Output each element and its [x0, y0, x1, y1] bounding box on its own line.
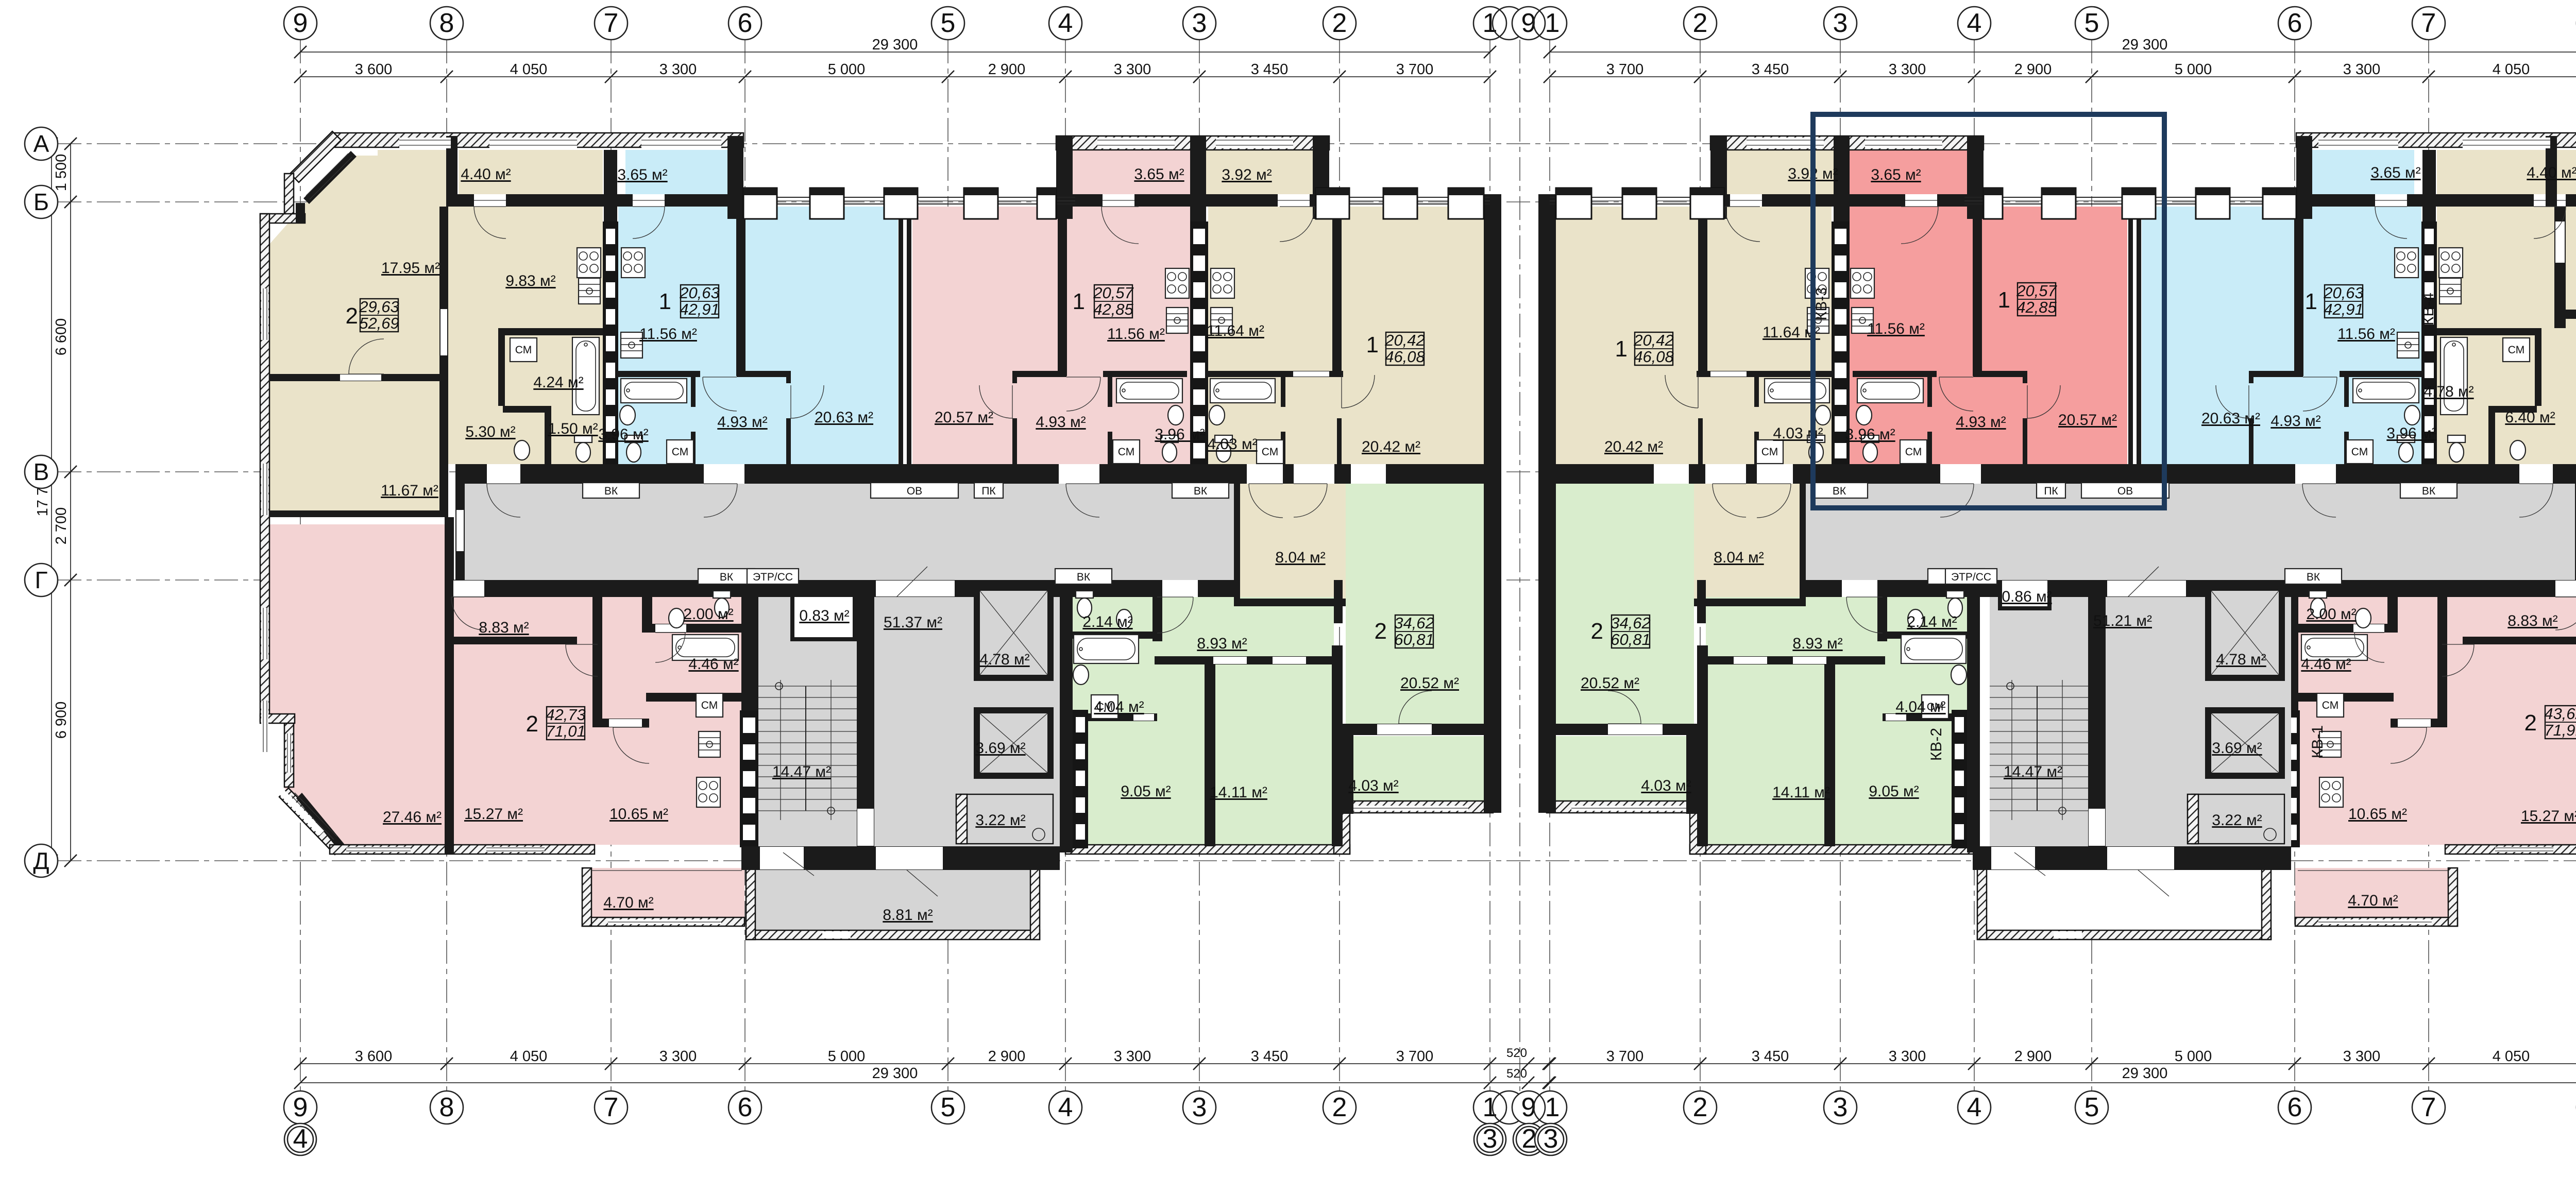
svg-text:2 900: 2 900	[2014, 61, 2052, 78]
svg-text:9: 9	[293, 8, 308, 38]
svg-text:КВ-1: КВ-1	[2309, 725, 2326, 758]
svg-text:2: 2	[1693, 8, 1708, 38]
svg-text:3.65 м²: 3.65 м²	[617, 166, 667, 183]
svg-text:42,91: 42,91	[2324, 300, 2364, 318]
svg-text:2: 2	[346, 303, 358, 329]
svg-text:20,63: 20,63	[679, 284, 720, 302]
svg-text:6 600: 6 600	[53, 318, 70, 356]
svg-text:2: 2	[1332, 1093, 1347, 1122]
svg-text:СМ: СМ	[2322, 700, 2338, 711]
svg-text:3 300: 3 300	[659, 61, 697, 78]
svg-text:4.03 м²: 4.03 м²	[1348, 777, 1398, 794]
svg-text:7: 7	[604, 8, 619, 38]
svg-text:3.65 м²: 3.65 м²	[2370, 164, 2420, 181]
svg-text:2: 2	[2524, 710, 2537, 736]
svg-text:20.57 м²: 20.57 м²	[935, 409, 993, 426]
svg-text:29 300: 29 300	[872, 1065, 918, 1082]
svg-text:6 900: 6 900	[53, 702, 70, 739]
svg-text:20.52 м²: 20.52 м²	[1581, 675, 1639, 692]
svg-text:5: 5	[941, 1093, 956, 1122]
svg-text:3 300: 3 300	[2343, 1048, 2381, 1065]
svg-text:ВК: ВК	[2422, 485, 2436, 497]
svg-text:46,08: 46,08	[1634, 348, 1674, 366]
svg-text:СМ: СМ	[1761, 446, 1778, 458]
svg-text:5: 5	[2084, 1093, 2099, 1122]
svg-text:СМ: СМ	[672, 446, 688, 458]
svg-text:4.78 м²: 4.78 м²	[2216, 651, 2266, 668]
svg-text:20.42 м²: 20.42 м²	[1604, 438, 1663, 455]
svg-text:8.83 м²: 8.83 м²	[2507, 612, 2557, 629]
svg-text:60,81: 60,81	[1394, 630, 1434, 649]
svg-text:8.93 м²: 8.93 м²	[1197, 635, 1247, 652]
svg-text:ПК: ПК	[981, 485, 996, 497]
svg-text:10.65 м²: 10.65 м²	[2348, 806, 2407, 823]
svg-text:3: 3	[1833, 8, 1848, 38]
svg-text:6.40 м²: 6.40 м²	[2505, 409, 2555, 426]
svg-text:4.93 м²: 4.93 м²	[1036, 414, 1086, 431]
svg-text:6: 6	[738, 1093, 753, 1122]
svg-text:1: 1	[1073, 289, 1085, 314]
svg-text:4.24 м²: 4.24 м²	[533, 374, 583, 391]
svg-text:Д: Д	[33, 847, 49, 874]
svg-text:8.81 м²: 8.81 м²	[883, 907, 933, 924]
svg-text:34,62: 34,62	[1394, 614, 1434, 632]
svg-text:8.04 м²: 8.04 м²	[1714, 549, 1764, 566]
svg-text:29 300: 29 300	[2122, 37, 2168, 53]
svg-text:20.52 м²: 20.52 м²	[1400, 675, 1459, 692]
svg-text:520: 520	[1506, 1046, 1527, 1060]
svg-text:20.63 м²: 20.63 м²	[815, 409, 873, 426]
svg-text:3.65 м²: 3.65 м²	[1134, 166, 1184, 183]
svg-text:0.83 м²: 0.83 м²	[799, 607, 849, 624]
svg-text:42,91: 42,91	[680, 300, 720, 318]
svg-text:15.27 м²: 15.27 м²	[464, 806, 523, 823]
svg-text:4 050: 4 050	[2493, 61, 2530, 78]
svg-text:29,63: 29,63	[359, 298, 399, 316]
svg-text:2: 2	[1375, 619, 1387, 644]
svg-text:3 700: 3 700	[1396, 61, 1434, 78]
svg-text:4: 4	[1058, 1093, 1073, 1122]
svg-text:3 450: 3 450	[1251, 61, 1289, 78]
svg-text:5.30 м²: 5.30 м²	[465, 423, 515, 440]
svg-text:ВК: ВК	[1833, 485, 1846, 497]
svg-text:20,42: 20,42	[1384, 331, 1425, 349]
svg-text:3 300: 3 300	[1114, 61, 1151, 78]
svg-text:КВ-4: КВ-4	[2420, 293, 2437, 326]
svg-text:6: 6	[738, 8, 753, 38]
svg-text:1: 1	[1615, 336, 1628, 362]
svg-text:14.11 м²: 14.11 м²	[1210, 784, 1267, 801]
svg-text:3 300: 3 300	[2343, 61, 2381, 78]
svg-text:1: 1	[1483, 1093, 1498, 1122]
svg-text:4 050: 4 050	[510, 61, 548, 78]
svg-text:5: 5	[2084, 8, 2099, 38]
svg-text:4.46 м²: 4.46 м²	[2301, 656, 2351, 673]
svg-text:3: 3	[1483, 1124, 1498, 1154]
svg-text:В: В	[33, 458, 49, 485]
svg-text:А: А	[33, 130, 49, 157]
svg-text:ВК: ВК	[604, 485, 618, 497]
svg-text:20,42: 20,42	[1633, 331, 1674, 349]
svg-text:52,69: 52,69	[359, 314, 399, 332]
svg-text:20,63: 20,63	[2323, 284, 2364, 302]
svg-text:Б: Б	[33, 189, 49, 215]
svg-text:20,57: 20,57	[1093, 284, 1134, 302]
svg-text:Г: Г	[35, 567, 48, 593]
svg-text:3.69 м²: 3.69 м²	[2212, 740, 2262, 757]
svg-text:11.67 м²: 11.67 м²	[381, 482, 438, 499]
svg-text:2: 2	[1693, 1093, 1708, 1122]
svg-text:27.46 м²: 27.46 м²	[383, 809, 442, 826]
svg-text:3 300: 3 300	[659, 1048, 697, 1065]
svg-text:2 700: 2 700	[53, 507, 70, 545]
svg-text:1: 1	[2305, 289, 2317, 314]
svg-text:ПК: ПК	[2044, 485, 2058, 497]
svg-text:ОВ: ОВ	[2117, 485, 2133, 497]
svg-text:8: 8	[439, 1093, 454, 1122]
svg-text:СМ: СМ	[515, 344, 532, 356]
svg-text:42,85: 42,85	[2016, 298, 2057, 316]
svg-text:9.83 м²: 9.83 м²	[505, 272, 555, 289]
svg-text:ЭТР/СС: ЭТР/СС	[753, 571, 793, 583]
svg-text:4: 4	[293, 1124, 308, 1154]
svg-text:1: 1	[1483, 8, 1498, 38]
svg-text:2: 2	[1591, 619, 1603, 644]
svg-text:3: 3	[1192, 1093, 1207, 1122]
svg-text:2.14 м²: 2.14 м²	[1907, 613, 1957, 630]
svg-text:СМ: СМ	[701, 700, 718, 711]
svg-text:9: 9	[293, 1093, 308, 1122]
svg-text:11.56 м²: 11.56 м²	[1867, 320, 1925, 337]
svg-text:СМ: СМ	[1118, 446, 1134, 458]
svg-text:3.65 м²: 3.65 м²	[1871, 166, 1921, 183]
svg-text:43,62: 43,62	[2544, 705, 2576, 723]
svg-text:СМ: СМ	[2508, 344, 2524, 356]
svg-text:15.27 м²: 15.27 м²	[2521, 808, 2576, 825]
svg-text:0.86 м²: 0.86 м²	[2002, 588, 2052, 605]
svg-text:3.96 м²: 3.96 м²	[2386, 425, 2436, 442]
svg-text:20.63 м²: 20.63 м²	[2201, 410, 2260, 427]
svg-text:6: 6	[2287, 1093, 2302, 1122]
svg-text:2: 2	[1332, 8, 1347, 38]
svg-text:10.65 м²: 10.65 м²	[609, 806, 668, 823]
svg-text:1: 1	[1545, 1093, 1560, 1122]
svg-text:60,81: 60,81	[1611, 630, 1651, 649]
svg-text:4.03 м²: 4.03 м²	[1773, 425, 1823, 442]
svg-text:4.70 м²: 4.70 м²	[603, 894, 653, 911]
svg-text:17.95 м²: 17.95 м²	[381, 260, 440, 277]
svg-text:4.70 м²: 4.70 м²	[2348, 892, 2398, 909]
svg-text:4.93 м²: 4.93 м²	[2270, 413, 2320, 430]
svg-text:14.47 м²: 14.47 м²	[2004, 763, 2062, 780]
svg-text:5: 5	[941, 8, 956, 38]
svg-text:4: 4	[1967, 1093, 1982, 1122]
svg-text:4.93 м²: 4.93 м²	[717, 414, 767, 431]
svg-text:3 700: 3 700	[1606, 1048, 1644, 1065]
svg-text:520: 520	[1506, 1067, 1527, 1081]
svg-text:8.04 м²: 8.04 м²	[1275, 549, 1325, 566]
svg-text:3: 3	[1833, 1093, 1848, 1122]
svg-text:29 300: 29 300	[2122, 1065, 2168, 1082]
svg-text:ЭТР/СС: ЭТР/СС	[1951, 571, 1991, 583]
svg-text:9.05 м²: 9.05 м²	[1869, 783, 1919, 800]
svg-text:4: 4	[1058, 8, 1073, 38]
svg-text:4.03 м²: 4.03 м²	[1641, 777, 1691, 794]
svg-text:1 500: 1 500	[53, 154, 70, 192]
svg-text:3.96 м²: 3.96 м²	[1155, 426, 1205, 443]
svg-text:2.00 м²: 2.00 м²	[2306, 606, 2356, 623]
svg-text:7: 7	[604, 1093, 619, 1122]
svg-text:5 000: 5 000	[828, 61, 866, 78]
svg-text:20,57: 20,57	[2016, 282, 2057, 300]
svg-text:34,62: 34,62	[1611, 614, 1651, 632]
svg-text:3 700: 3 700	[1606, 61, 1644, 78]
svg-text:1: 1	[659, 289, 671, 314]
svg-text:71,01: 71,01	[546, 722, 586, 740]
svg-text:9.05 м²: 9.05 м²	[1121, 783, 1171, 800]
svg-text:4.40 м²: 4.40 м²	[2527, 164, 2576, 181]
svg-text:3 300: 3 300	[1889, 61, 1926, 78]
svg-text:1: 1	[1366, 332, 1379, 357]
svg-text:3.69 м²: 3.69 м²	[975, 740, 1025, 757]
svg-text:14.11 м²: 14.11 м²	[1772, 784, 1830, 801]
svg-text:3: 3	[1544, 1124, 1558, 1154]
svg-text:СМ: СМ	[2351, 446, 2368, 458]
svg-text:11.56 м²: 11.56 м²	[639, 326, 697, 343]
svg-text:3 450: 3 450	[1251, 1048, 1289, 1065]
svg-text:20.57 м²: 20.57 м²	[2058, 412, 2117, 429]
svg-text:3 300: 3 300	[1114, 1048, 1151, 1065]
svg-text:4.04 м²: 4.04 м²	[1895, 698, 1945, 715]
svg-text:51.21 м²: 51.21 м²	[2093, 612, 2152, 629]
svg-text:3 450: 3 450	[1752, 61, 1789, 78]
svg-text:42,73: 42,73	[546, 706, 586, 724]
svg-text:4: 4	[1967, 8, 1982, 38]
svg-text:7: 7	[2421, 8, 2436, 38]
svg-text:29 300: 29 300	[872, 37, 918, 53]
svg-text:5 000: 5 000	[2175, 61, 2212, 78]
svg-text:7: 7	[2421, 1093, 2436, 1122]
svg-text:3 700: 3 700	[1396, 1048, 1434, 1065]
svg-text:3 450: 3 450	[1752, 1048, 1789, 1065]
svg-text:14.47 м²: 14.47 м²	[772, 763, 831, 780]
svg-text:2 900: 2 900	[988, 61, 1026, 78]
svg-text:3.96 м²: 3.96 м²	[1845, 426, 1895, 443]
svg-text:3.96 м²: 3.96 м²	[598, 426, 648, 443]
svg-text:71,91: 71,91	[2544, 721, 2576, 739]
svg-text:2: 2	[526, 711, 538, 737]
svg-text:1: 1	[1545, 8, 1560, 38]
svg-text:4.04 м²: 4.04 м²	[1094, 698, 1144, 715]
svg-text:2.14 м²: 2.14 м²	[1082, 613, 1132, 630]
svg-text:4.93 м²: 4.93 м²	[1956, 414, 2006, 431]
svg-text:2 900: 2 900	[2014, 1048, 2052, 1065]
svg-text:4.78 м²: 4.78 м²	[979, 651, 1029, 668]
svg-text:3 300: 3 300	[1889, 1048, 1926, 1065]
svg-text:3.22 м²: 3.22 м²	[2212, 812, 2262, 829]
svg-text:4 050: 4 050	[2493, 1048, 2530, 1065]
svg-text:2 900: 2 900	[988, 1048, 1026, 1065]
svg-text:КВ-2: КВ-2	[1928, 728, 1945, 761]
svg-text:СМ: СМ	[1905, 446, 1922, 458]
svg-text:8.83 м²: 8.83 м²	[479, 619, 529, 636]
svg-text:3 600: 3 600	[355, 61, 393, 78]
svg-text:11.64 м²: 11.64 м²	[1207, 322, 1264, 339]
svg-text:8: 8	[439, 8, 454, 38]
svg-text:20.42 м²: 20.42 м²	[1362, 438, 1420, 455]
svg-text:1.50 м²: 1.50 м²	[548, 420, 598, 437]
svg-text:ВК: ВК	[2307, 571, 2320, 583]
svg-text:СМ: СМ	[1262, 446, 1278, 458]
svg-text:3.22 м²: 3.22 м²	[975, 812, 1025, 829]
svg-text:3 600: 3 600	[355, 1048, 393, 1065]
svg-text:1: 1	[1998, 287, 2010, 313]
svg-text:ВК: ВК	[720, 571, 734, 583]
svg-text:51.37 м²: 51.37 м²	[884, 614, 942, 631]
svg-text:ВК: ВК	[1077, 571, 1091, 583]
svg-text:46,08: 46,08	[1385, 348, 1425, 366]
svg-text:ОВ: ОВ	[907, 485, 922, 497]
svg-text:11.56 м²: 11.56 м²	[2337, 326, 2395, 343]
svg-text:ВК: ВК	[1194, 485, 1208, 497]
svg-text:5 000: 5 000	[828, 1048, 866, 1065]
svg-text:4.03 м²: 4.03 м²	[1207, 436, 1257, 453]
svg-text:8.93 м²: 8.93 м²	[1792, 635, 1842, 652]
svg-text:4.78 м²: 4.78 м²	[2424, 383, 2473, 400]
svg-text:3.92 м²: 3.92 м²	[1222, 166, 1272, 183]
svg-text:4.40 м²: 4.40 м²	[461, 166, 511, 183]
svg-text:4.46 м²: 4.46 м²	[688, 656, 738, 673]
svg-text:5 000: 5 000	[2175, 1048, 2212, 1065]
svg-text:11.56 м²: 11.56 м²	[1107, 326, 1165, 343]
svg-text:3: 3	[1192, 8, 1207, 38]
svg-text:4 050: 4 050	[510, 1048, 548, 1065]
svg-text:42,85: 42,85	[1093, 300, 1133, 318]
svg-text:2.00 м²: 2.00 м²	[683, 606, 733, 623]
svg-text:6: 6	[2287, 8, 2302, 38]
